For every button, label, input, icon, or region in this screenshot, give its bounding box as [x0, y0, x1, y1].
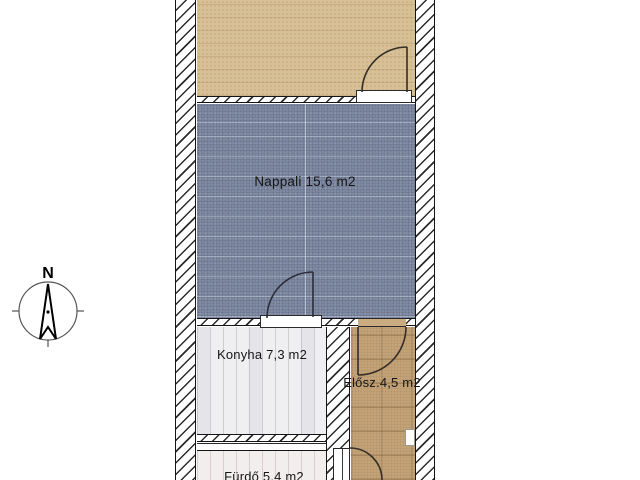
compass-north-label: N [38, 266, 58, 281]
floor-plan: N Nappali 15,6 m2 Konyha 7,3 m2 Elősz.4,… [0, 0, 640, 480]
door-swing-arc [350, 448, 382, 480]
room-label-nappali: Nappali 15,6 m2 [205, 175, 405, 189]
door-swing-arc [358, 327, 406, 375]
room-label-eloszoba: Elősz.4,5 m2 [332, 376, 432, 390]
room-label-furdo: Fürdő 5,4 m2 [199, 470, 329, 480]
plan-vector-overlay [0, 0, 640, 480]
door-top-room [362, 47, 407, 92]
door-swing-arc [267, 272, 313, 318]
door-eloszoba [358, 327, 406, 375]
compass-rose [12, 282, 84, 347]
door-swing-arc [362, 47, 407, 92]
door-furdo [350, 448, 382, 480]
door-nappali [267, 272, 313, 318]
room-label-konyha: Konyha 7,3 m2 [197, 348, 327, 362]
